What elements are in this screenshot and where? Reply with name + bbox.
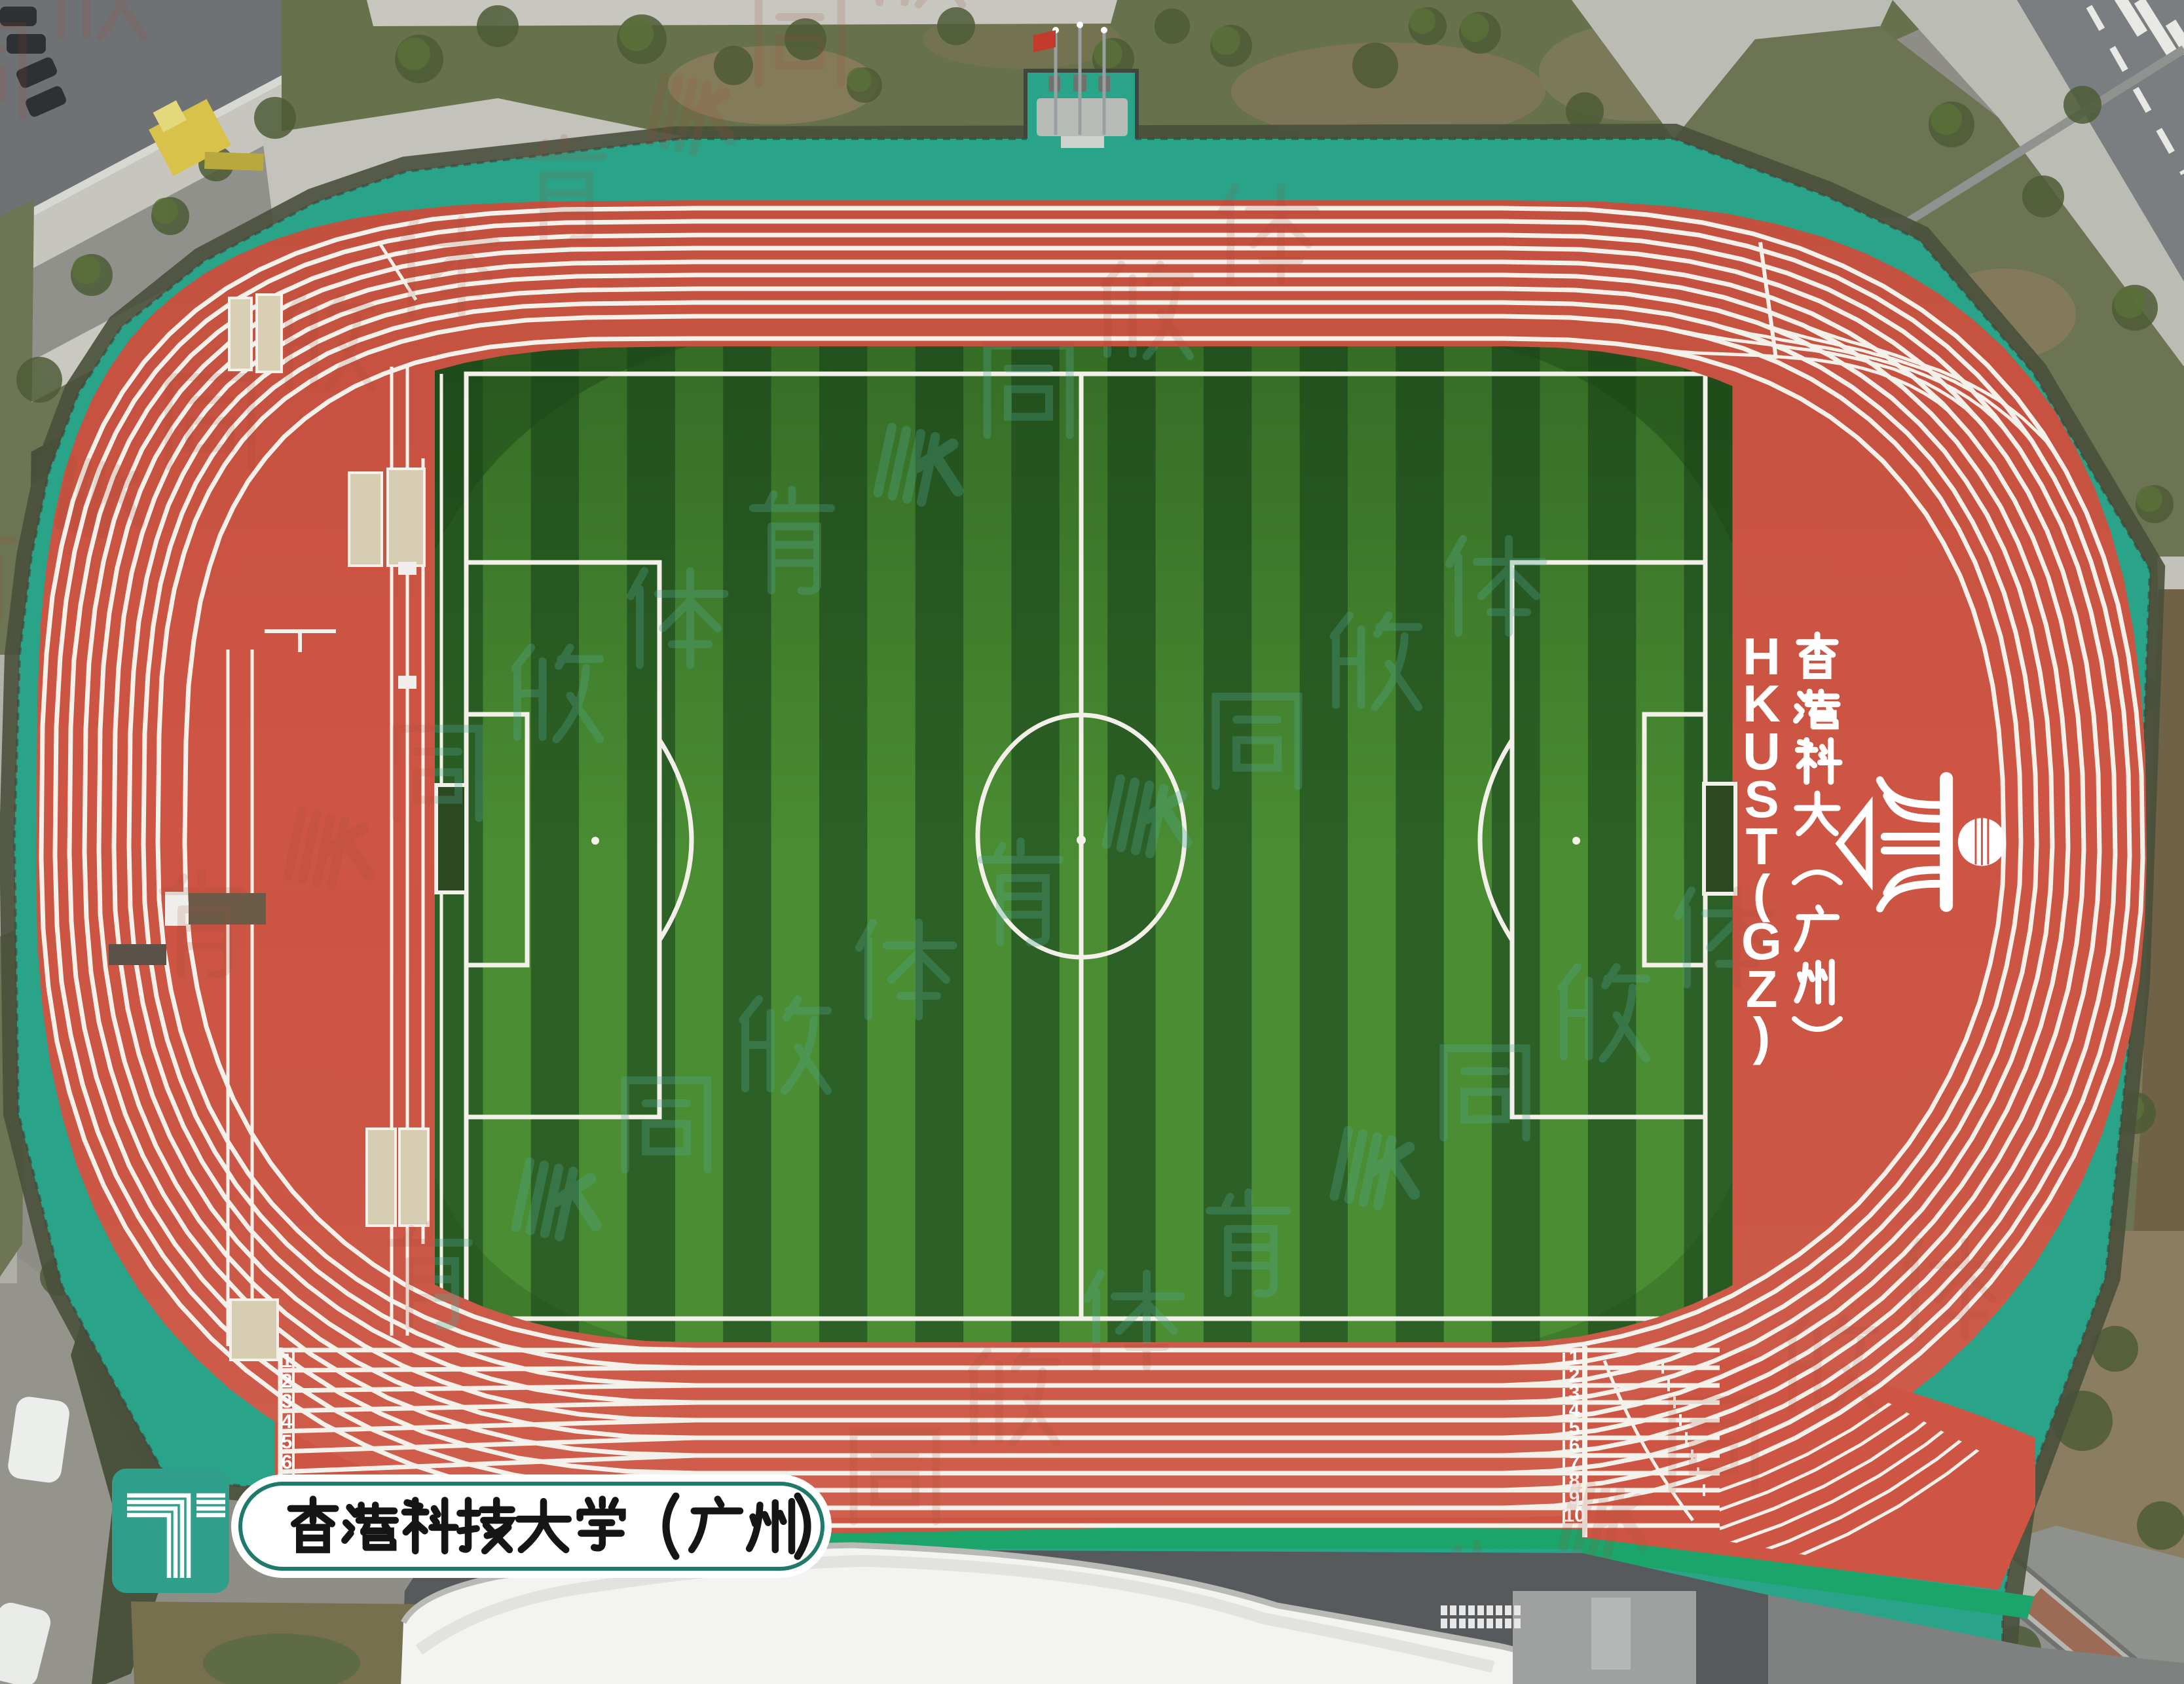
svg-text:4: 4: [282, 1411, 293, 1433]
svg-text:5: 5: [282, 1431, 293, 1453]
svg-text:): ): [1753, 1007, 1771, 1065]
svg-text:6: 6: [282, 1452, 293, 1473]
svg-text:1: 1: [282, 1350, 293, 1372]
svg-text:3: 3: [282, 1391, 293, 1412]
svg-text:2: 2: [282, 1370, 293, 1392]
